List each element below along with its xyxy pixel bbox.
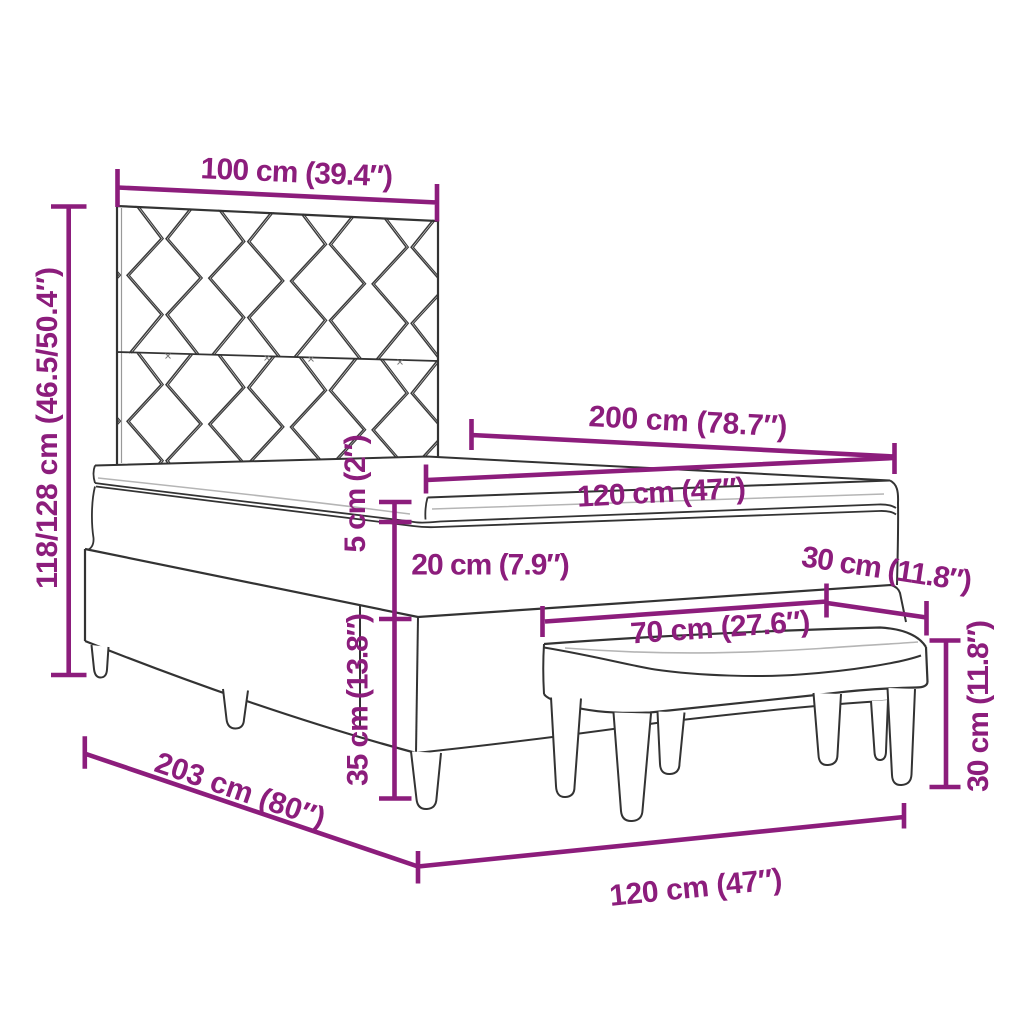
svg-text:30 cm (11.8″): 30 cm (11.8″)	[962, 621, 995, 792]
svg-text:118/128 cm (46.5/50.4″): 118/128 cm (46.5/50.4″)	[31, 267, 64, 589]
svg-text:20 cm (7.9″): 20 cm (7.9″)	[411, 548, 568, 581]
svg-text:35 cm (13.8″): 35 cm (13.8″)	[341, 614, 374, 786]
svg-text:5 cm (2″): 5 cm (2″)	[339, 435, 372, 552]
